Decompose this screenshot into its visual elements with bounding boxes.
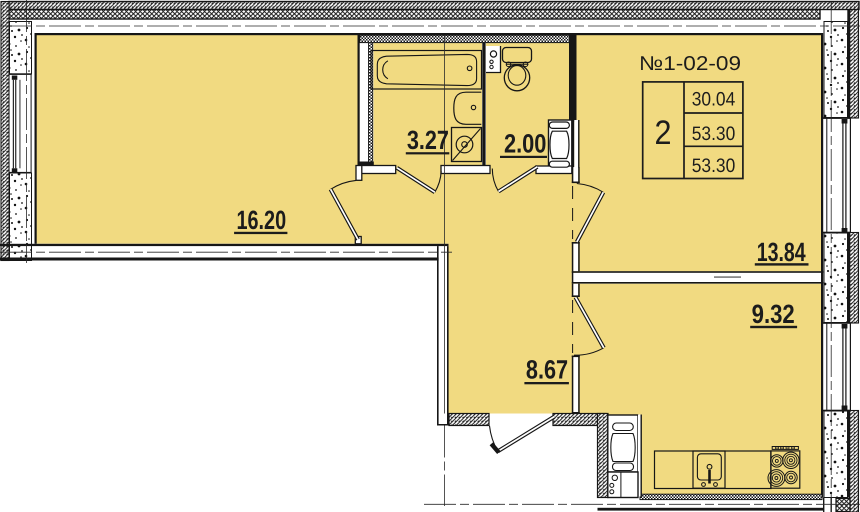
svg-text:9.32: 9.32 [752, 299, 795, 329]
svg-text:16.20: 16.20 [236, 205, 286, 235]
svg-text:3.27: 3.27 [407, 125, 449, 155]
svg-text:53.30: 53.30 [692, 155, 736, 177]
svg-text:30.04: 30.04 [692, 89, 736, 111]
svg-text:№1-02-09: №1-02-09 [639, 53, 741, 75]
svg-text:53.30: 53.30 [692, 123, 736, 145]
svg-text:2: 2 [655, 114, 672, 152]
svg-text:8.67: 8.67 [526, 355, 568, 385]
svg-text:2.00: 2.00 [504, 129, 547, 159]
svg-text:13.84: 13.84 [757, 237, 806, 267]
